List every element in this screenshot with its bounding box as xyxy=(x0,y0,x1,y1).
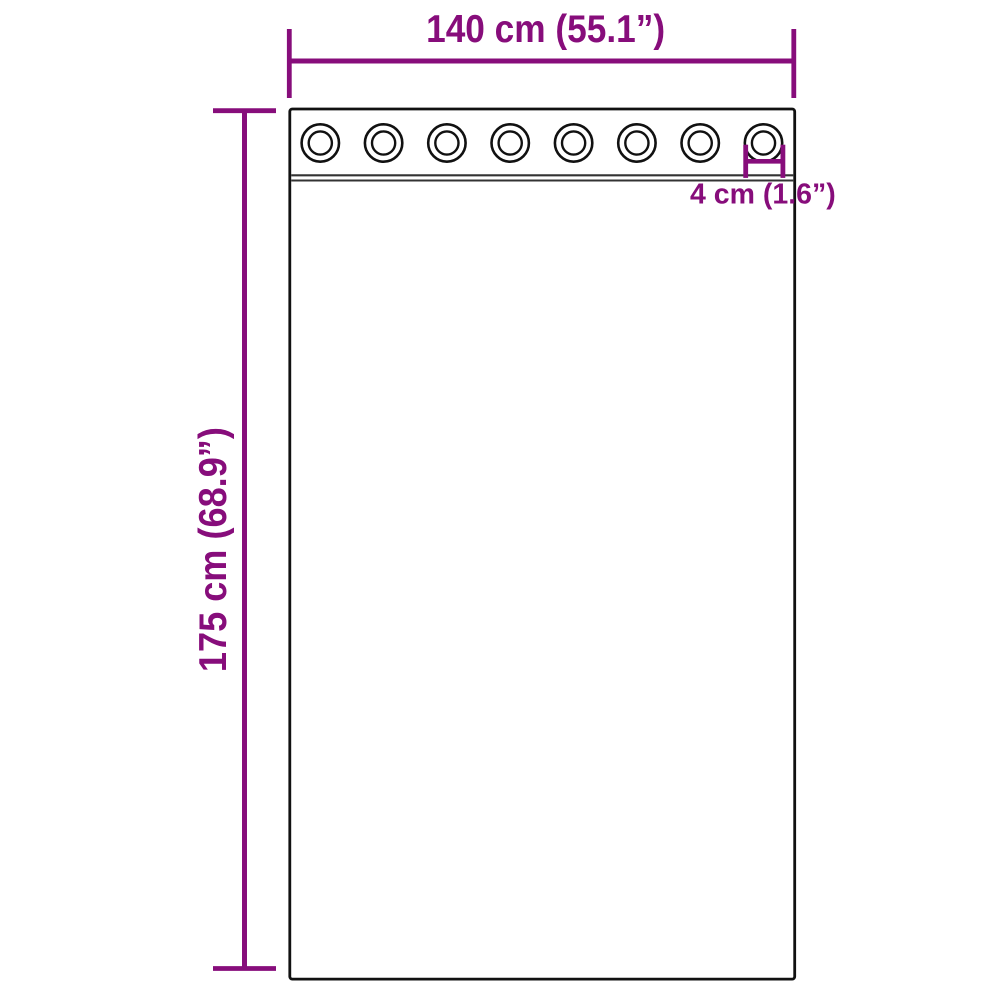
svg-text:175 cm (68.9”): 175 cm (68.9”) xyxy=(192,427,235,672)
svg-text:140 cm (55.1”): 140 cm (55.1”) xyxy=(426,8,665,51)
svg-text:4 cm (1.6”): 4 cm (1.6”) xyxy=(690,179,836,211)
